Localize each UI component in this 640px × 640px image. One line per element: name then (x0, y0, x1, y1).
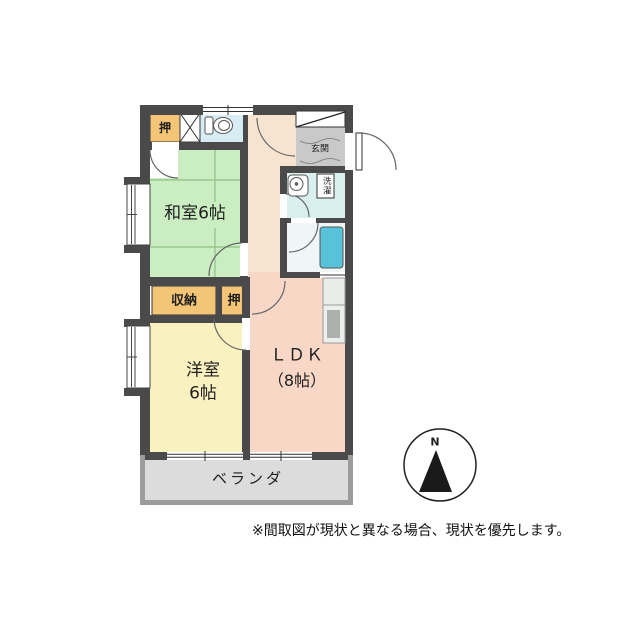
yoshitsu-label-line2: 6帖 (189, 386, 217, 403)
yoshitsu-label-line1: 洋室 (186, 363, 220, 380)
bay-window-washitsu (127, 184, 150, 245)
window-yoshitsu-veranda (167, 451, 243, 461)
kitchen-counter-icon (323, 278, 345, 343)
kitchen-hatch-window (320, 272, 345, 278)
entrance-label: 玄関 (311, 146, 329, 155)
compass (404, 429, 476, 501)
veranda-label: ベランダ (212, 472, 284, 487)
entrance-door-arc (359, 133, 396, 170)
sink-icon (288, 175, 308, 196)
window-top (203, 105, 253, 115)
entrance-door-leaf (356, 133, 362, 170)
window-ldk-veranda (250, 451, 312, 461)
shoe-cabinet-icon (296, 111, 345, 127)
washitsu-label: 和室6帖 (164, 206, 226, 223)
closet-top-label: 押 (159, 122, 171, 134)
floor-plan-drawing (0, 0, 640, 640)
ldk-label-line2: （8帖） (268, 373, 326, 389)
ldk-label-line1: ＬＤＫ (270, 348, 324, 365)
bay-window-yoshitsu (127, 326, 150, 388)
toilet-icon (205, 117, 233, 134)
closet-mid-label: 押 (227, 295, 240, 308)
compass-north-label: N (430, 437, 439, 448)
bathtub-icon (320, 227, 343, 268)
storage-label: 収納 (171, 295, 197, 308)
disclaimer-text: ※間取図が現状と異なる場合、現状を優先します。 (252, 524, 570, 538)
floor-plan-page: 押 玄関 洗濯 和室6帖 収納 押 洋室 6帖 ＬＤＫ （8帖） ベランダ N … (0, 0, 640, 640)
laundry-label: 洗濯 (322, 177, 331, 196)
